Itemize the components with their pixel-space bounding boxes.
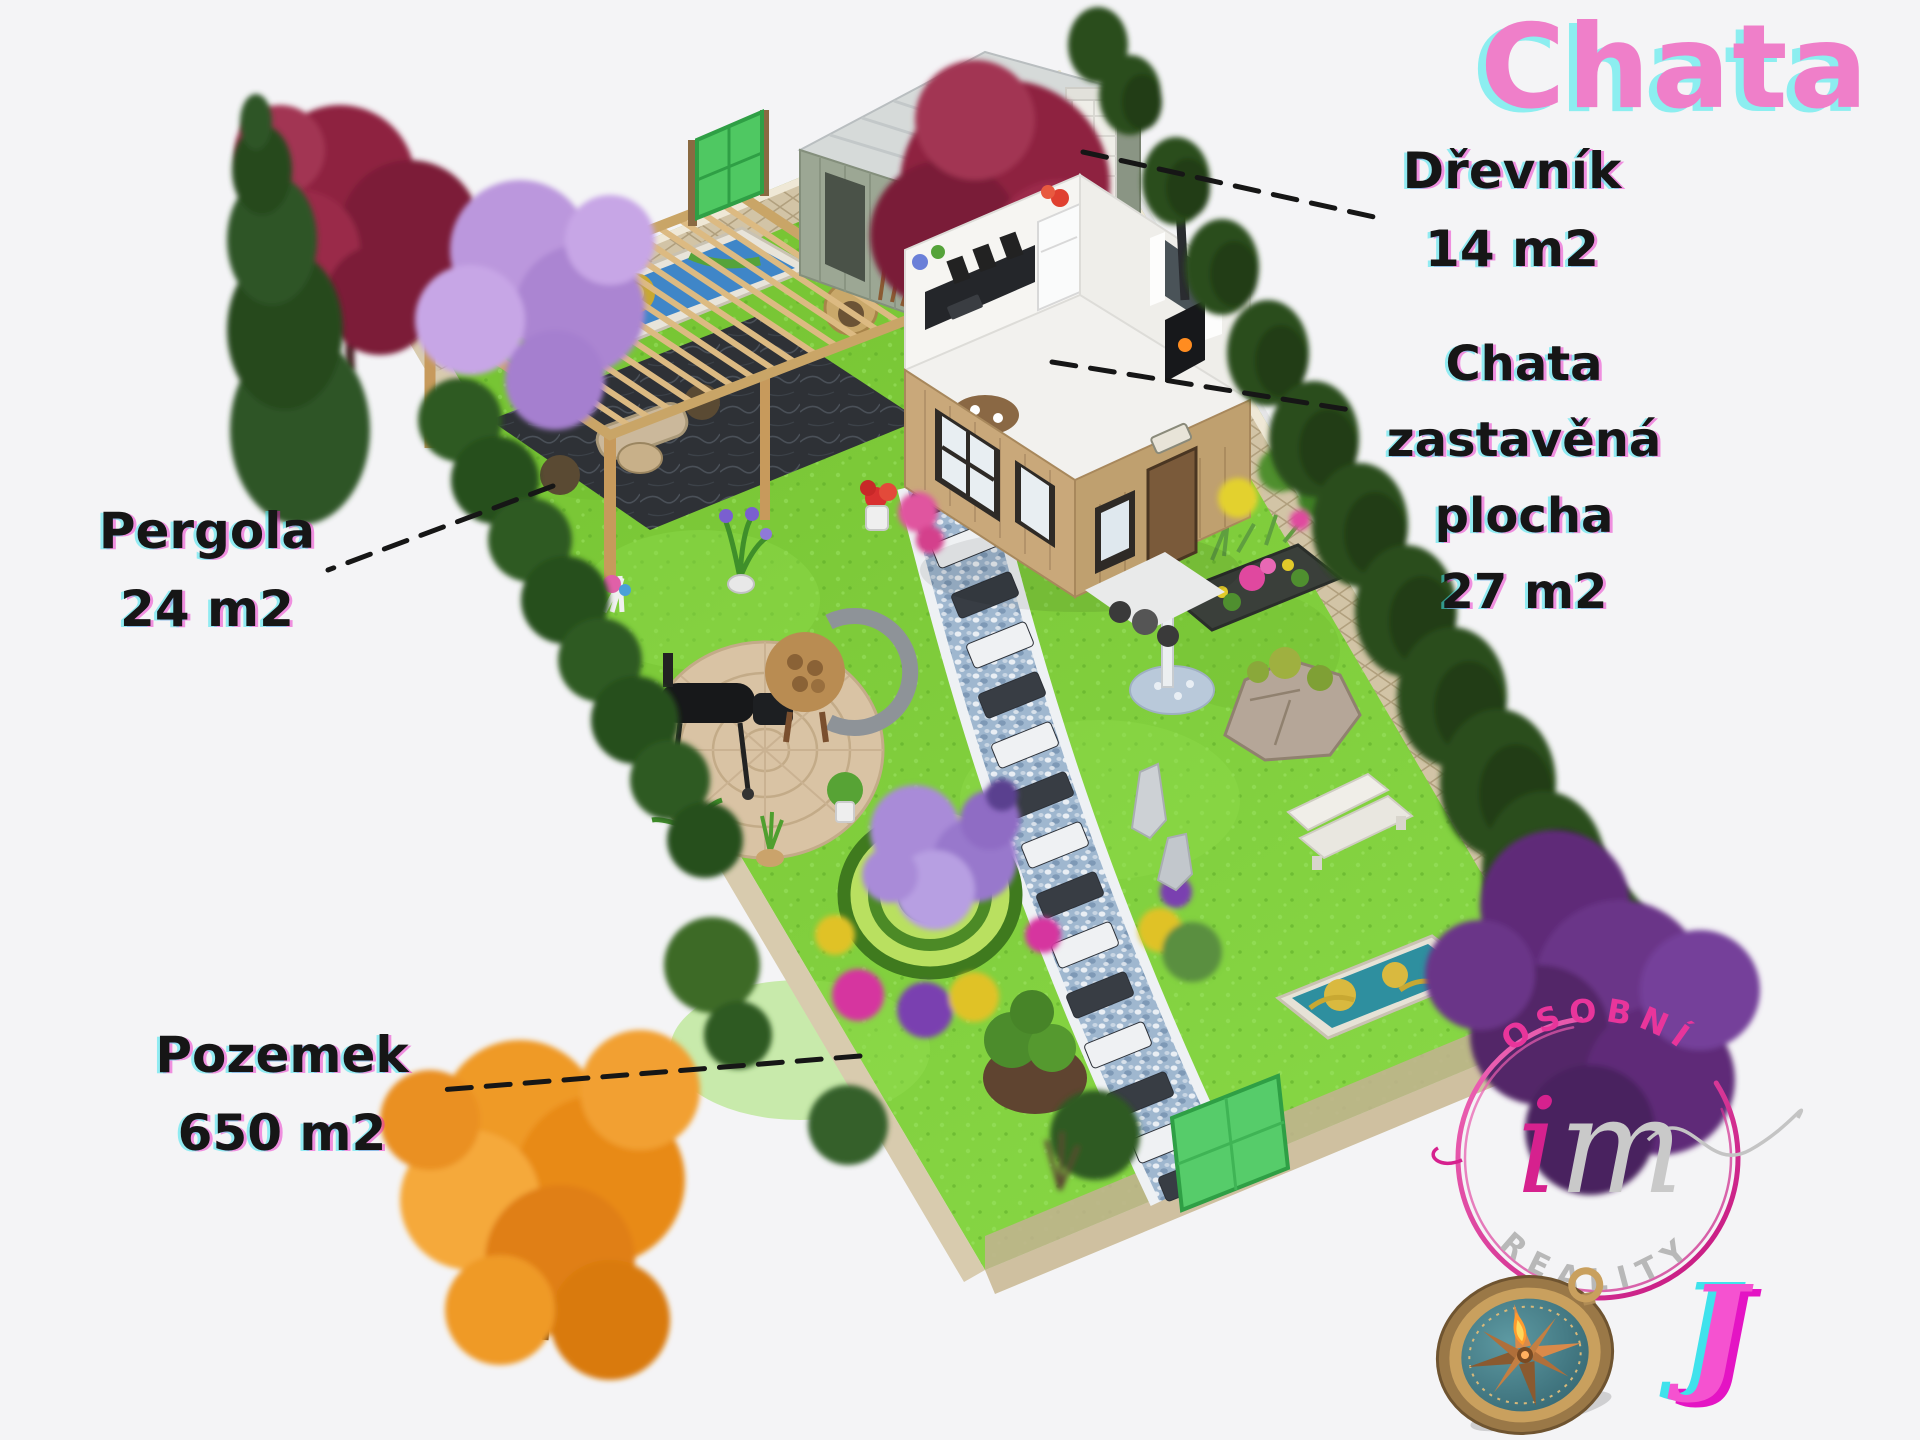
- logo-script-text: im: [1516, 1070, 1683, 1224]
- annotation-pergola-label: Pergola: [17, 492, 397, 570]
- annotation-pergola: Pergola 24 m2: [17, 492, 397, 648]
- annotation-pergola-area: 24 m2: [17, 570, 397, 648]
- annotation-chata-area: 27 m2: [1294, 554, 1754, 630]
- annotation-pozemek-label: Pozemek: [82, 1016, 482, 1094]
- annotation-chata: Chata zastavěná plocha 27 m2: [1294, 326, 1754, 630]
- page-title: Chata: [1430, 0, 1920, 135]
- annotation-drevnik-area: 14 m2: [1312, 210, 1712, 288]
- annotation-pozemek-area: 650 m2: [82, 1094, 482, 1172]
- annotation-drevnik-label: Dřevník: [1312, 132, 1712, 210]
- garden-plan-page: OSOBNÍ REALITY im: [0, 0, 1920, 1440]
- annotation-drevnik: Dřevník 14 m2: [1312, 132, 1712, 288]
- annotation-chata-label: Chata: [1294, 326, 1754, 402]
- annotation-pozemek: Pozemek 650 m2: [82, 1016, 482, 1172]
- annotation-chata-sublabel: zastavěná plocha: [1294, 402, 1754, 554]
- compass-icon: [1423, 1260, 1628, 1440]
- monogram-letter: J: [1612, 1258, 1822, 1406]
